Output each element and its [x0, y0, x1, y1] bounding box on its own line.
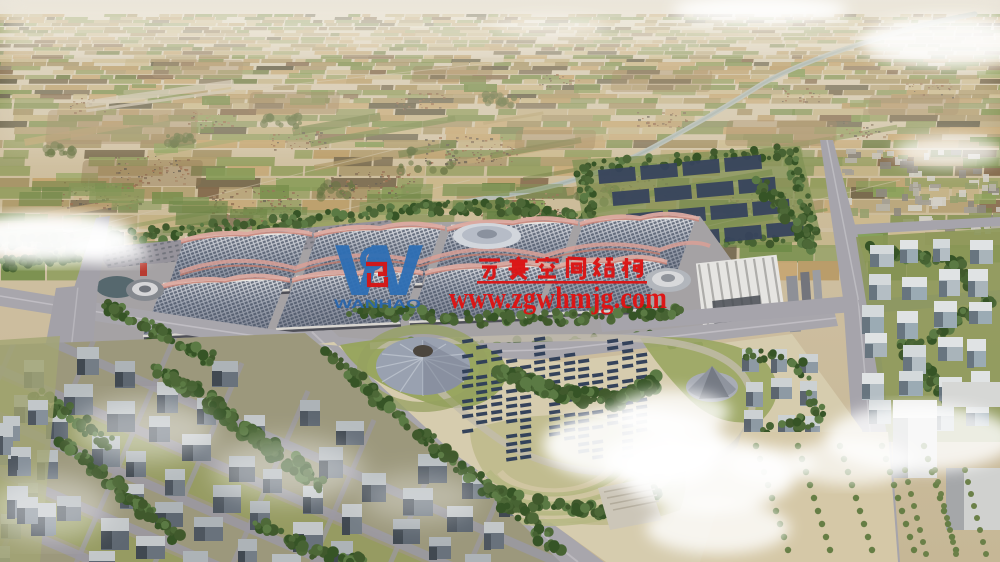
- svg-text:WANHAO: WANHAO: [334, 299, 421, 311]
- svg-text:www.zgwhmjg.com: www.zgwhmjg.com: [449, 280, 667, 315]
